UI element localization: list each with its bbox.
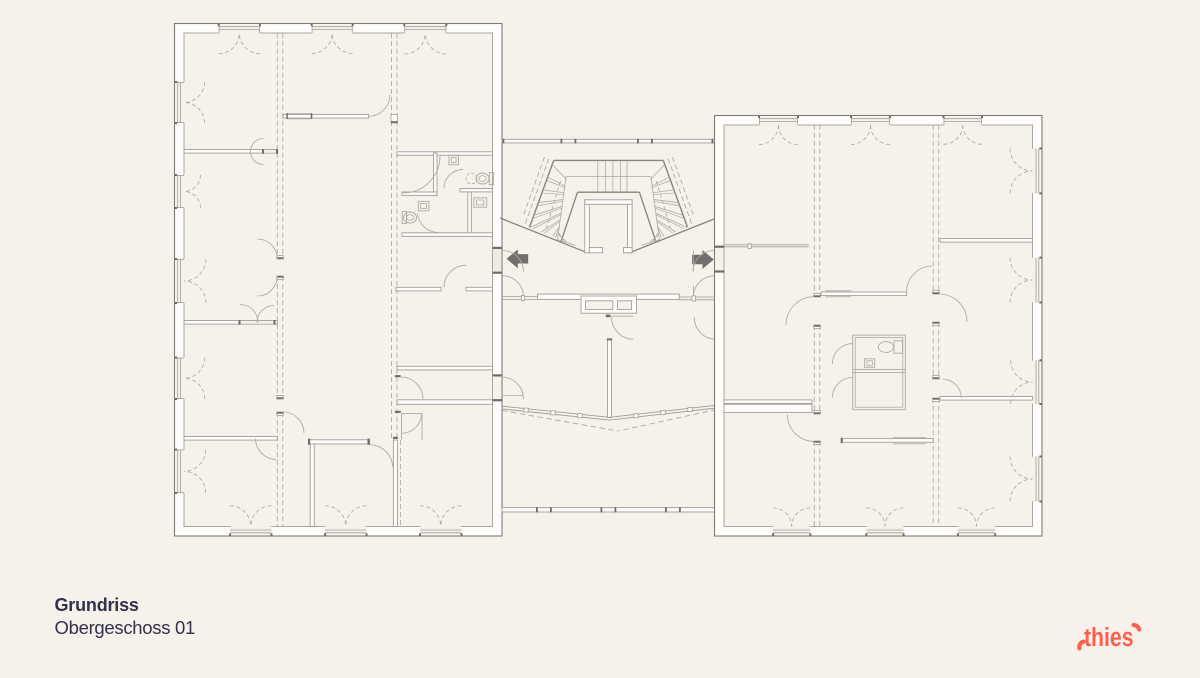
svg-text:thies: thies [1084, 624, 1134, 652]
svg-text:Obergeschoss 01: Obergeschoss 01 [55, 617, 196, 638]
svg-text:Grundriss: Grundriss [55, 595, 139, 615]
